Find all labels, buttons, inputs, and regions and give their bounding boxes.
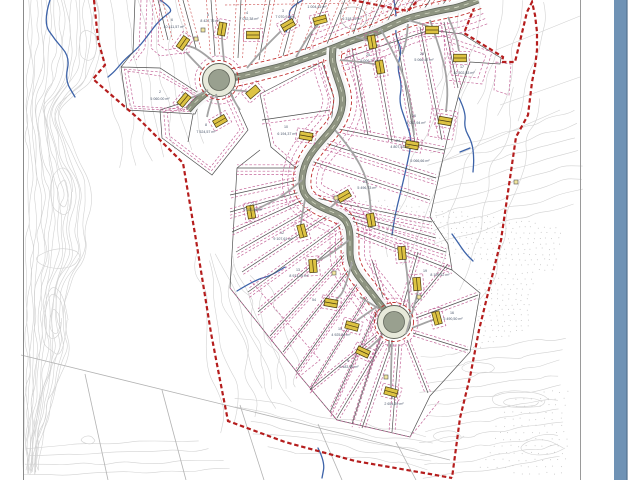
svg-text:5 496,73 m²: 5 496,73 m² <box>357 186 377 190</box>
svg-text:15: 15 <box>338 327 342 331</box>
svg-text:6 318,75 m²: 6 318,75 m² <box>342 17 362 21</box>
svg-text:12: 12 <box>280 231 284 235</box>
svg-text:26: 26 <box>412 114 416 118</box>
svg-text:8 427,75 m²: 8 427,75 m² <box>200 19 220 23</box>
svg-text:6 194,37 m²: 6 194,37 m² <box>277 132 297 136</box>
svg-text:9 023,06 m²: 9 023,06 m² <box>243 208 263 212</box>
svg-text:9: 9 <box>347 359 349 363</box>
svg-text:8 974,05 m²: 8 974,05 m² <box>289 274 309 278</box>
svg-text:5: 5 <box>207 13 209 17</box>
svg-text:54: 54 <box>312 298 316 302</box>
svg-text:5 060.00 m²: 5 060.00 m² <box>150 97 170 101</box>
svg-text:16: 16 <box>450 311 454 315</box>
svg-text:5 066,66 m²: 5 066,66 m² <box>410 159 430 163</box>
svg-text:6: 6 <box>171 18 173 22</box>
svg-text:2 654,39 m²: 2 654,39 m² <box>384 402 404 406</box>
svg-text:23: 23 <box>363 180 367 184</box>
svg-text:7: 7 <box>182 92 184 96</box>
svg-text:8: 8 <box>205 123 207 127</box>
svg-text:5 006,27 m²: 5 006,27 m² <box>360 59 380 63</box>
svg-text:7 070,91 m²: 7 070,91 m² <box>275 15 295 19</box>
svg-text:10: 10 <box>284 125 288 129</box>
svg-text:8 199,52 m²: 8 199,52 m² <box>430 273 450 277</box>
svg-text:4 807,53 m²: 4 807,53 m² <box>390 145 410 149</box>
svg-text:2: 2 <box>159 90 161 94</box>
svg-text:5 066,47 m²: 5 066,47 m² <box>414 58 434 62</box>
svg-text:5 490,50 m²: 5 490,50 m² <box>443 317 463 321</box>
svg-text:10 502,53 m²: 10 502,53 m² <box>453 71 475 75</box>
svg-text:1 004,45 m²: 1 004,45 m² <box>307 5 327 9</box>
svg-text:25: 25 <box>366 53 370 57</box>
svg-text:2: 2 <box>340 11 342 15</box>
svg-text:4 925,54 m²: 4 925,54 m² <box>331 333 351 337</box>
svg-text:24: 24 <box>396 139 400 143</box>
svg-text:6 483,35 m²: 6 483,35 m² <box>339 365 359 369</box>
svg-text:4 013,94 m²: 4 013,94 m² <box>406 121 426 125</box>
svg-text:7 524,57 m²: 7 524,57 m² <box>196 130 216 134</box>
svg-text:3: 3 <box>282 9 284 13</box>
svg-text:17: 17 <box>460 65 464 69</box>
svg-text:13: 13 <box>296 268 300 272</box>
svg-text:19: 19 <box>423 269 427 273</box>
svg-text:77: 77 <box>250 202 254 206</box>
svg-text:28: 28 <box>420 52 424 56</box>
svg-text:7 032,38 m²: 7 032,38 m² <box>239 17 259 21</box>
svg-text:57: 57 <box>391 396 395 400</box>
svg-text:9 107,61 m²: 9 107,61 m² <box>273 237 293 241</box>
svg-text:10 411,57 m²: 10 411,57 m² <box>164 25 186 29</box>
svg-text:4: 4 <box>246 11 248 15</box>
